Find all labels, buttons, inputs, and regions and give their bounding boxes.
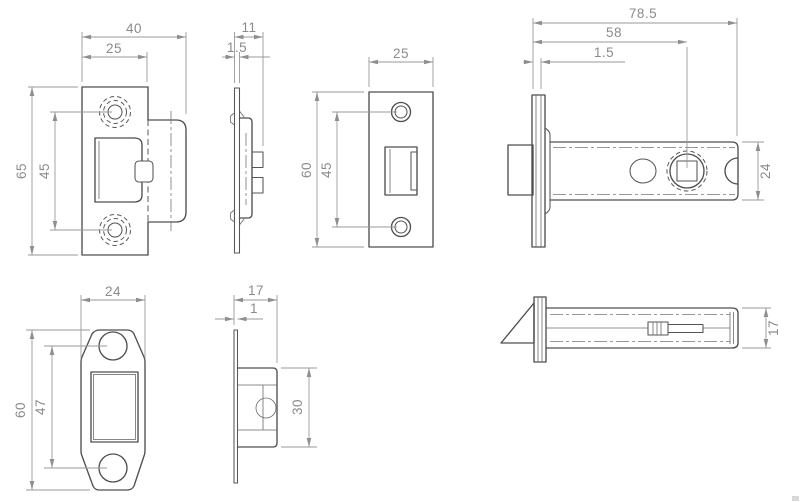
dim-label-case-width: 17 xyxy=(766,320,781,336)
dim-label-box-height: 30 xyxy=(290,399,305,415)
dim-label-plate-height: 60 xyxy=(299,162,314,178)
dim-label-hole-spacing: 45 xyxy=(37,163,52,179)
dim-label-plate-thickness: 1.5 xyxy=(227,40,247,55)
dim-label-plate-width: 25 xyxy=(106,41,122,56)
dim-label-plate-width: 25 xyxy=(393,46,409,61)
dim-label-overall-width: 40 xyxy=(126,21,142,36)
dim-label-overall-length: 78.5 xyxy=(629,6,657,21)
dim-label-backset: 58 xyxy=(606,25,622,40)
technical-drawing-canvas: 40 25 65 45 11 1.5 xyxy=(0,0,800,502)
dim-label-plate-thickness: 1 xyxy=(250,301,258,316)
page-background xyxy=(0,0,800,502)
dim-label-hole-spacing: 45 xyxy=(319,162,334,178)
latch-bolt-tip xyxy=(135,161,153,182)
dim-label-overall-depth: 11 xyxy=(241,20,256,35)
page-corner-artifact xyxy=(792,496,799,501)
dim-label-case-height: 24 xyxy=(758,163,773,179)
dim-label-hole-spacing: 47 xyxy=(33,399,48,415)
dim-label-faceplate-thickness: 1.5 xyxy=(594,45,614,60)
dim-label-plate-width: 24 xyxy=(105,284,121,299)
dim-label-plate-height: 60 xyxy=(13,402,28,418)
dim-label-plate-height: 65 xyxy=(14,163,29,179)
dim-label-overall-depth: 17 xyxy=(248,283,264,298)
